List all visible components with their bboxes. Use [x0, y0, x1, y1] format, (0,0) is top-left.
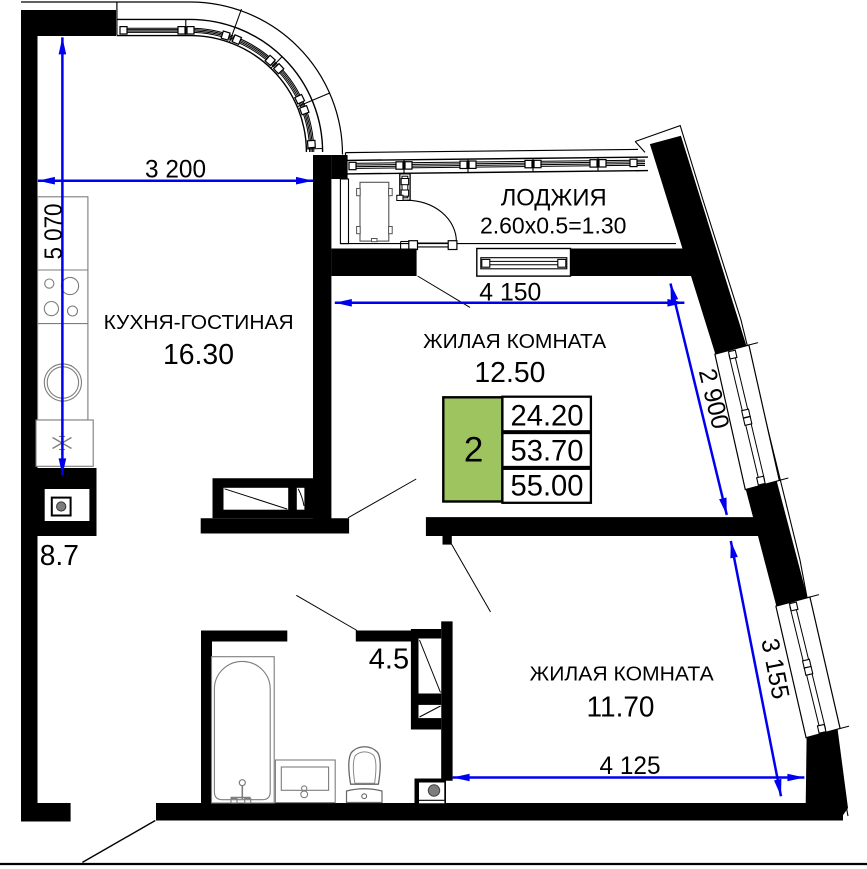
svg-text:ЖИЛАЯ КОМНАТА: ЖИЛАЯ КОМНАТА	[530, 663, 715, 685]
svg-text:4 150: 4 150	[479, 279, 541, 307]
svg-text:ЖИЛАЯ КОМНАТА: ЖИЛАЯ КОМНАТА	[423, 331, 607, 353]
svg-text:16.30: 16.30	[163, 339, 234, 371]
svg-text:24.20: 24.20	[511, 400, 584, 433]
svg-text:4.5: 4.5	[369, 644, 409, 676]
svg-text:55.00: 55.00	[511, 469, 584, 502]
svg-text:5 070: 5 070	[40, 204, 68, 260]
svg-text:12.50: 12.50	[474, 357, 545, 389]
svg-text:2.60х0.5=1.30: 2.60х0.5=1.30	[480, 213, 627, 239]
svg-text:53.70: 53.70	[511, 434, 584, 467]
svg-text:ЛОДЖИЯ: ЛОДЖИЯ	[501, 184, 607, 211]
svg-text:КУХНЯ-ГОСТИНАЯ: КУХНЯ-ГОСТИНАЯ	[104, 312, 294, 334]
svg-text:11.70: 11.70	[587, 691, 655, 723]
svg-text:3 200: 3 200	[145, 155, 206, 183]
svg-text:2: 2	[464, 431, 483, 470]
svg-text:4 125: 4 125	[600, 752, 661, 780]
svg-text:8.7: 8.7	[40, 540, 79, 572]
